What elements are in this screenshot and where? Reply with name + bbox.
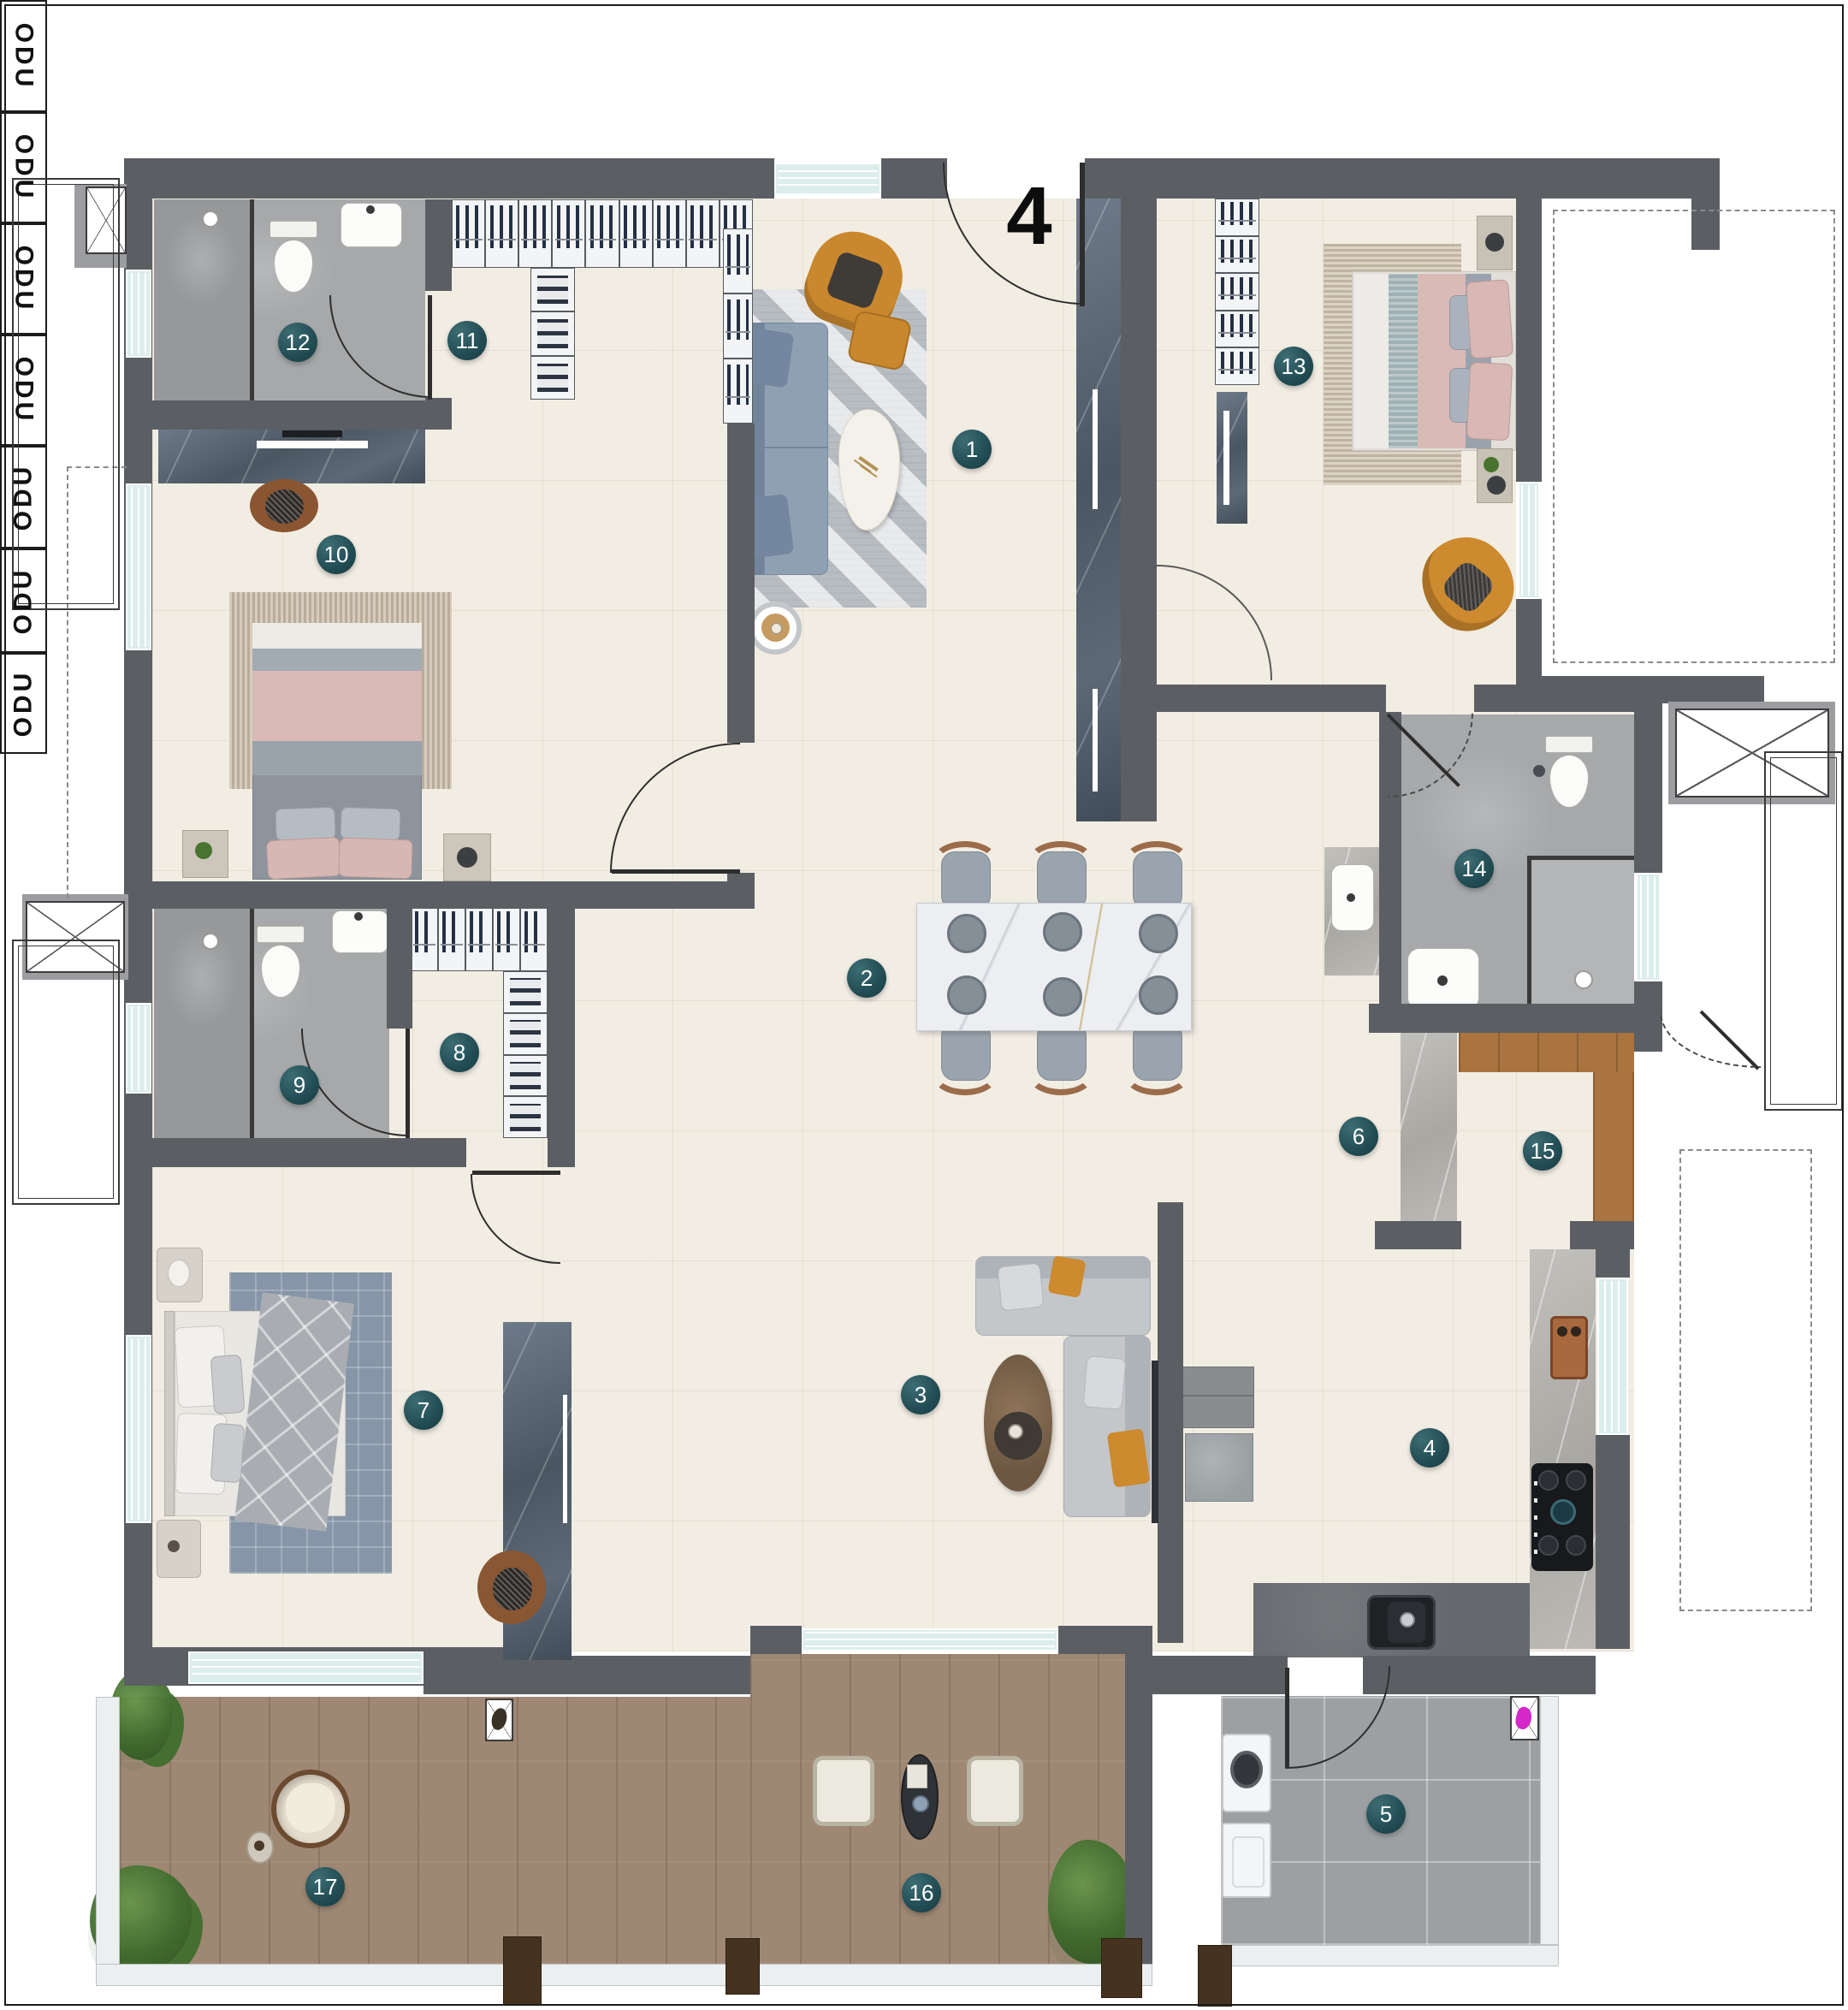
room-marker-12: 12 bbox=[278, 323, 317, 362]
entrance-door-leaf bbox=[1080, 163, 1085, 306]
room-marker-14: 14 bbox=[1454, 849, 1494, 888]
room-marker-8: 8 bbox=[440, 1033, 479, 1072]
odu-label: ODU bbox=[9, 670, 38, 738]
marble-wall-handle bbox=[1093, 389, 1098, 509]
room-marker-17: 17 bbox=[305, 1867, 345, 1906]
bedroom-10-door-leaf bbox=[612, 869, 740, 874]
bathroom-9-door-leaf bbox=[406, 1029, 410, 1138]
dresser-runner bbox=[257, 441, 368, 448]
room-marker-6: 6 bbox=[1339, 1117, 1378, 1156]
bedroom-7-door-leaf bbox=[472, 1171, 560, 1175]
room-marker-5: 5 bbox=[1366, 1794, 1406, 1834]
floor-plan: 4 1234567891011121314151617ODUODUODUODUO… bbox=[0, 0, 1848, 2010]
hob-burner bbox=[1566, 1470, 1586, 1491]
room-marker-11: 11 bbox=[447, 321, 487, 360]
bathroom-12-door-leaf bbox=[428, 295, 432, 400]
hob-burner bbox=[1566, 1535, 1586, 1556]
tv-panel bbox=[1152, 1361, 1158, 1523]
room-marker-13: 13 bbox=[1274, 347, 1313, 386]
wardrobe-panel-handle bbox=[563, 1395, 567, 1523]
room-marker-1: 1 bbox=[952, 430, 992, 469]
coffee-machine-detail bbox=[1571, 1326, 1581, 1337]
room-marker-16: 16 bbox=[902, 1873, 941, 1912]
marble-wall-handle bbox=[1093, 689, 1098, 792]
hob-burner bbox=[1538, 1470, 1559, 1491]
room-marker-7: 7 bbox=[404, 1390, 443, 1430]
hob-knobs bbox=[1534, 1477, 1537, 1554]
dresser-tray bbox=[282, 430, 342, 437]
room-marker-3: 3 bbox=[901, 1375, 940, 1414]
unit-number: 4 bbox=[991, 169, 1068, 264]
stool-10-seat bbox=[265, 489, 304, 524]
room-marker-10: 10 bbox=[317, 535, 356, 574]
coffee-machine bbox=[1550, 1316, 1588, 1379]
coffee-machine-detail bbox=[1557, 1326, 1567, 1337]
room-marker-2: 2 bbox=[847, 958, 886, 998]
hob-burner-main bbox=[1550, 1499, 1576, 1525]
room-marker-9: 9 bbox=[280, 1065, 319, 1105]
room-marker-15: 15 bbox=[1523, 1131, 1562, 1171]
odu-unit: ODU bbox=[0, 653, 47, 754]
chair-7-seat bbox=[493, 1568, 532, 1610]
room-marker-4: 4 bbox=[1410, 1428, 1449, 1467]
hob-burner bbox=[1538, 1535, 1559, 1556]
vanity-tap bbox=[1347, 893, 1355, 902]
utility-door-leaf bbox=[1285, 1668, 1289, 1769]
dresser-13-runner bbox=[1223, 411, 1229, 505]
